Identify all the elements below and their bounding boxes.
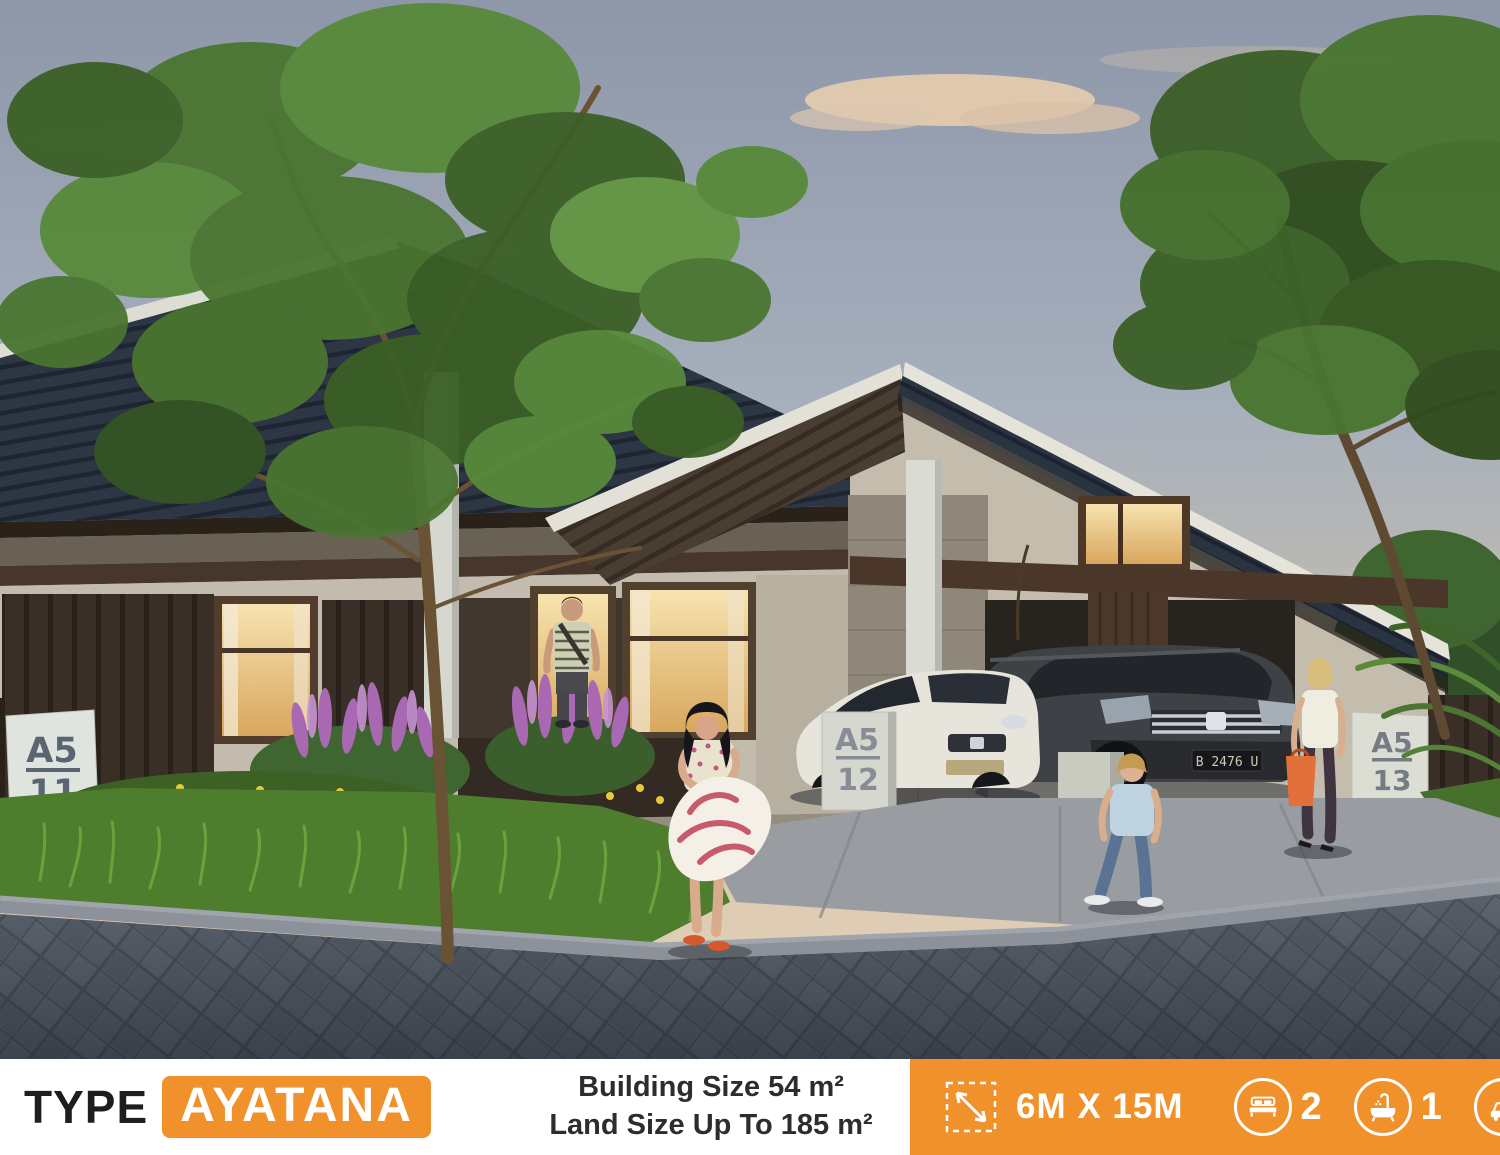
svg-text:A5: A5 (835, 723, 879, 758)
svg-text:12: 12 (837, 763, 879, 798)
car-icon (1474, 1078, 1500, 1136)
bathroom-count: 1 (1421, 1086, 1442, 1129)
house-b-window (1078, 496, 1190, 572)
hatchback-brand-badge (970, 737, 984, 749)
suv-brand-badge (1206, 712, 1226, 730)
garage-spec: 1 (1474, 1078, 1500, 1136)
bedroom-spec: 2 (1234, 1078, 1322, 1136)
suv-license-plate: B 2476 U (1192, 750, 1262, 771)
type-name-badge: AYATANA (162, 1076, 431, 1138)
svg-text:A5: A5 (26, 731, 77, 771)
bedroom-count: 2 (1301, 1086, 1322, 1129)
specs-bar: 6M X 15M 2 (910, 1059, 1500, 1155)
size-info: Building Size 54 m² Land Size Up To 185 … (512, 1059, 910, 1155)
house-render-scene: B 2476 U A5 11 (0, 0, 1500, 1059)
hatchback-headlight-right (1001, 715, 1027, 729)
type-banner: TYPE AYATANA (0, 1059, 512, 1155)
land-size-text: Land Size Up To 185 m² (549, 1107, 872, 1145)
real-estate-poster: B 2476 U A5 11 (0, 0, 1500, 1155)
type-label: TYPE (24, 1080, 148, 1134)
info-banner: TYPE AYATANA Building Size 54 m² Land Si… (0, 1059, 1500, 1155)
dimension-label: 6M X 15M (1016, 1087, 1184, 1127)
svg-text:13: 13 (1373, 764, 1412, 797)
suv-headlight-right (1258, 700, 1298, 726)
house-sign-a5-12: A5 12 (822, 712, 896, 810)
orange-shopping-bag (1286, 756, 1316, 806)
svg-text:B 2476 U: B 2476 U (1196, 755, 1259, 770)
bed-icon (1234, 1078, 1292, 1136)
building-size-text: Building Size 54 m² (578, 1069, 844, 1107)
dimension-arrow-icon (944, 1080, 998, 1134)
bath-icon (1354, 1078, 1412, 1136)
bathroom-spec: 1 (1354, 1078, 1442, 1136)
